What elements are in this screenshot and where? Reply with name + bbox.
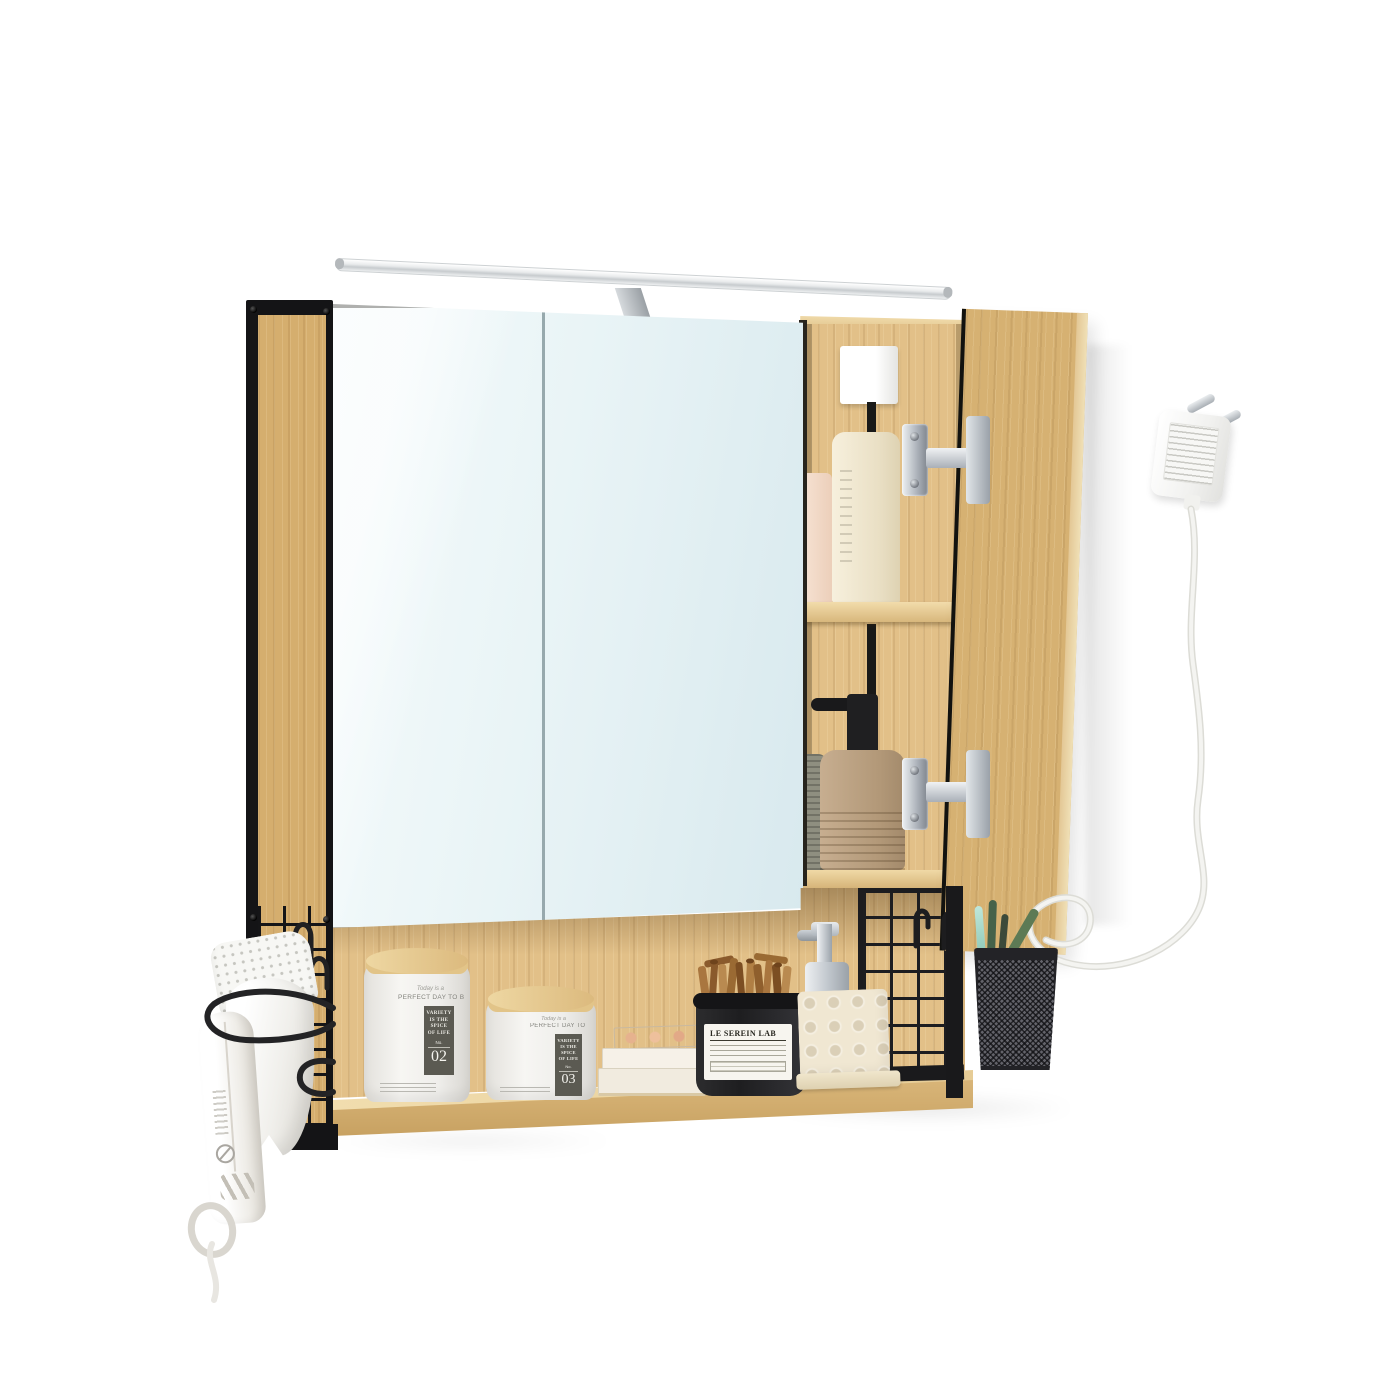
jar-brand-text: LE SEREIN LAB (710, 1029, 786, 1041)
interior-bottom-board (803, 870, 963, 888)
handle-label-lines (212, 1088, 228, 1135)
plug-pin (1186, 392, 1217, 414)
screw-icon (910, 432, 919, 441)
canister-body: Today is a PERFECT DAY TO BE HAPPY VARIE… (364, 964, 470, 1102)
label-line: OF LIFE (555, 1056, 582, 1062)
canister-script-text: Today is a (541, 1016, 566, 1022)
soap-stand-face (797, 989, 890, 1078)
cream-palette-box (598, 1068, 706, 1096)
hinge-base-plate (902, 758, 928, 830)
canister-fine-print (500, 1084, 550, 1092)
canister-body: Today is a PERFECT DAY TO BE HAPPY VARIE… (486, 1000, 596, 1100)
lamp-end-cap (943, 287, 953, 298)
adapter-cable-neck (1183, 494, 1201, 511)
mirror-door-divider (542, 304, 545, 930)
door-wall-shadow (1086, 345, 1130, 925)
jar-rim (693, 993, 809, 1009)
door-edge-banding (1055, 313, 1088, 955)
canister-fine-print (380, 1083, 436, 1092)
dispenser-pump-stem (817, 924, 832, 966)
canister-script-text: Today is a (417, 986, 444, 992)
canister-wood-lid (488, 986, 594, 1012)
jar-label: LE SEREIN LAB (704, 1024, 792, 1080)
led-light-bar (336, 258, 952, 300)
screw-icon (910, 766, 919, 775)
soap-dispenser-pump (847, 694, 878, 752)
cream-lotion-bottle (832, 432, 900, 603)
canister-label-block: VARIETY IS THE SPICE OF LIFE No. 02 (424, 1006, 454, 1075)
gold-palette-box (614, 1024, 705, 1049)
bottle-label-lines (840, 466, 852, 562)
door-hinge-bottom (902, 750, 994, 840)
storage-canister-small: Today is a PERFECT DAY TO BE HAPPY VARIE… (486, 986, 596, 1100)
adapter-label (1163, 422, 1220, 486)
open-mirror-door-back (940, 309, 1088, 955)
hinge-door-plate (966, 750, 990, 838)
lamp-end-cap (335, 258, 345, 269)
pink-cosmetic-bottle (803, 473, 832, 603)
mirror-sheen (333, 304, 803, 930)
dimpled-soap-stand (797, 988, 900, 1093)
interior-middle-shelf (803, 602, 963, 622)
canister-wood-lid (366, 948, 468, 974)
door-hinge-top (902, 416, 994, 506)
white-palette-box (602, 1048, 702, 1070)
screw-icon (250, 914, 257, 921)
label-number: 02 (428, 1047, 450, 1066)
label-no: No. (424, 1040, 454, 1045)
screw-icon (910, 813, 919, 822)
storage-canister-large: Today is a PERFECT DAY TO BE HAPPY VARIE… (364, 948, 470, 1102)
screw-icon (910, 479, 919, 488)
candle-jar: LE SEREIN LAB (696, 998, 806, 1096)
mirror-top-edge (333, 304, 803, 308)
canister-headline-text: PERFECT DAY TO BE HAPPY (398, 994, 464, 1001)
dispenser-ribs (820, 812, 905, 870)
screw-icon (250, 306, 257, 313)
led-lamp-stem (615, 288, 651, 320)
canister-label-block: VARIETY IS THE SPICE OF LIFE No. 03 (555, 1034, 582, 1096)
basket-rim (974, 952, 1058, 960)
hinge-arm (926, 782, 970, 802)
mesh-toothbrush-basket (974, 948, 1058, 1070)
jar-label-lines (710, 1045, 786, 1056)
hinge-base-plate (902, 424, 928, 496)
label-line: VARIETY (424, 1011, 454, 1018)
stacked-palette-boxes (598, 1024, 704, 1096)
stone-soap-dispenser (820, 750, 905, 870)
power-adapter (1150, 409, 1232, 503)
hinge-arm (926, 448, 970, 468)
handle-vents (219, 1172, 255, 1200)
product-photo-stage: Today is a PERFECT DAY TO BE HAPPY VARIE… (0, 0, 1400, 1400)
frame-corner-post (946, 886, 963, 1098)
canister-headline-text: PERFECT DAY TO BE HAPPY (530, 1023, 586, 1029)
mirror-doors (333, 304, 803, 930)
screw-icon (323, 308, 330, 315)
hinge-door-plate (966, 416, 990, 504)
jar-label-box (710, 1061, 786, 1072)
label-number: 03 (559, 1071, 578, 1088)
label-line: OF LIFE (424, 1031, 454, 1038)
screw-icon (323, 916, 330, 923)
white-storage-box (840, 346, 898, 404)
soap-stand-base (796, 1070, 900, 1090)
label-no: No. (555, 1064, 582, 1069)
